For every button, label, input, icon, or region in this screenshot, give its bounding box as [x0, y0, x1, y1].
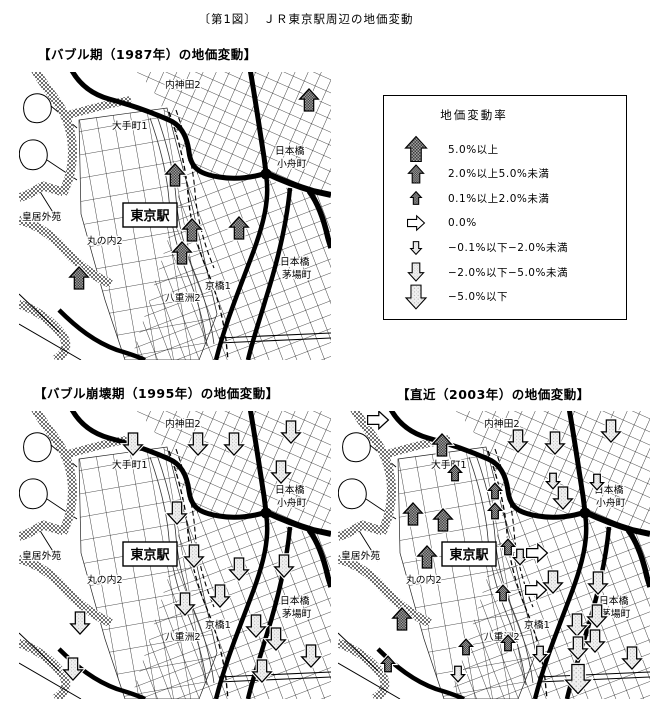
up-arrow-small-icon [394, 186, 438, 210]
map-2003-title: 【直近（2003年）の地価変動】 [397, 384, 590, 403]
legend-box: 地価変動率 5.0%以上 2.0%以上5.0%未満 0.1%以上2.0%未満 0… [383, 95, 627, 320]
tokyo-station-label: 東京駅 [449, 547, 489, 563]
legend-title: 地価変動率 [384, 107, 626, 123]
district-label: 八重洲2 [165, 291, 201, 304]
district-label: 日本橋 [599, 594, 629, 607]
tokyo-station-label: 東京駅 [130, 208, 170, 224]
map-1987: 東京駅内神田2大手町1日本橋小舟町皇居外苑丸の内2京橋1八重洲2日本橋茅場町 [19, 72, 331, 360]
legend-item-label: −5.0%以下 [448, 289, 508, 304]
change-arrow-up3 [405, 137, 426, 162]
district-label: 丸の内2 [87, 573, 123, 586]
legend-item: 0.0% [384, 211, 626, 236]
figure-page: 〔第1図〕 ＪＲ東京駅周辺の地価変動 【バブル期（1987年）の地価変動】 【バ… [0, 0, 654, 712]
map-1995-title: 【バブル崩壊期（1995年）の地価変動】 [34, 383, 279, 402]
legend-item: −5.0%以下 [384, 285, 626, 310]
legend-rows: 5.0%以上 2.0%以上5.0%未満 0.1%以上2.0%未満 0.0% −0… [384, 137, 626, 309]
district-label: 日本橋 [275, 483, 305, 496]
legend-item-label: 2.0%以上5.0%未満 [448, 166, 549, 181]
district-label: 皇居外苑 [341, 549, 380, 562]
district-label: 京橋1 [205, 279, 231, 292]
change-arrow-flat [408, 216, 425, 230]
legend-item-label: 5.0%以上 [448, 142, 499, 157]
up-arrow-large-icon [394, 137, 438, 161]
legend-item: 5.0%以上 [384, 137, 626, 162]
district-label: 小舟町 [277, 157, 307, 170]
legend-item-label: −0.1%以下−2.0%未満 [448, 240, 568, 255]
district-label: 皇居外苑 [22, 210, 61, 223]
legend-item-label: −2.0%以下−5.0%未満 [448, 265, 568, 280]
change-arrow-down3 [406, 285, 426, 309]
district-label: 京橋1 [524, 618, 550, 631]
legend-item: 0.1%以上2.0%未満 [384, 186, 626, 211]
legend-item-label: 0.0% [448, 217, 477, 229]
district-label: 八重洲2 [165, 630, 201, 643]
change-arrow-up2 [408, 165, 423, 183]
district-label: 大手町1 [112, 119, 148, 132]
legend-item: −0.1%以下−2.0%未満 [384, 235, 626, 260]
district-label: 日本橋 [275, 144, 305, 157]
map-1987-title: 【バブル期（1987年）の地価変動】 [38, 44, 257, 63]
legend-item: 2.0%以上5.0%未満 [384, 162, 626, 187]
figure-title: 〔第1図〕 ＪＲ東京駅周辺の地価変動 [0, 11, 612, 27]
district-label: 皇居外苑 [22, 549, 61, 562]
district-label: 大手町1 [112, 458, 148, 471]
change-arrow-up1 [411, 192, 422, 205]
district-label: 大手町1 [431, 458, 467, 471]
district-label: 日本橋 [280, 594, 310, 607]
district-label: 内神田2 [165, 78, 201, 91]
map-1995: 東京駅内神田2大手町1日本橋小舟町皇居外苑丸の内2京橋1八重洲2日本橋茅場町 [19, 411, 331, 699]
down-arrow-large-icon [394, 285, 438, 309]
down-arrow-small-icon [394, 236, 438, 260]
legend-item: −2.0%以下−5.0%未満 [384, 260, 626, 285]
change-arrow-down1 [411, 241, 422, 254]
district-label: 小舟町 [277, 496, 307, 509]
district-label: 丸の内2 [87, 234, 123, 247]
district-label: 小舟町 [596, 496, 626, 509]
tokyo-station-label: 東京駅 [130, 547, 170, 563]
change-arrow-down2 [408, 263, 423, 281]
district-label: 茅場町 [282, 607, 312, 620]
district-label: 丸の内2 [406, 573, 442, 586]
district-label: 日本橋 [280, 255, 310, 268]
legend-item-label: 0.1%以上2.0%未満 [448, 191, 549, 206]
map-2003: 東京駅内神田2大手町1日本橋小舟町皇居外苑丸の内2京橋1八重洲2日本橋茅場町 [338, 411, 650, 699]
district-label: 内神田2 [165, 417, 201, 430]
down-arrow-medium-icon [394, 260, 438, 284]
up-arrow-medium-icon [394, 162, 438, 186]
district-label: 京橋1 [205, 618, 231, 631]
right-arrow-icon [394, 211, 438, 235]
district-label: 内神田2 [484, 417, 520, 430]
district-label: 茅場町 [282, 268, 312, 281]
